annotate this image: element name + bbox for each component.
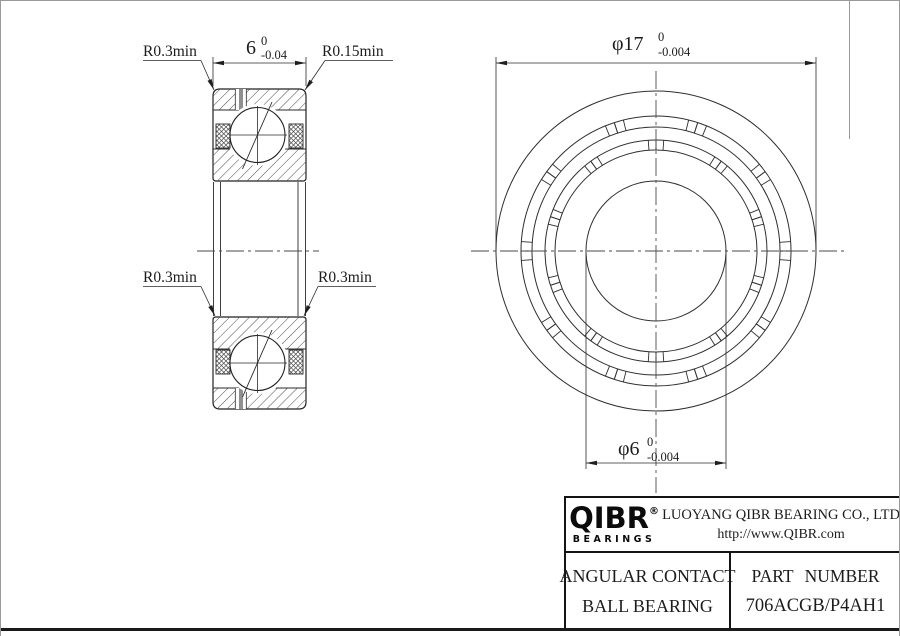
width-dim-value: 6 [246, 37, 256, 59]
fillet-label-mid-right: R0.3min [318, 269, 372, 286]
fillet-label-top-right: R0.15min [322, 43, 384, 60]
cage-section-left-lower [216, 350, 230, 374]
title-block-header-row: QIBR® BEARINGS LUOYANG QIBR BEARING CO.,… [566, 498, 900, 553]
drawing-sheet: 6 0 -0.04 R0.3min R0.15min R0.3min R0.3m… [0, 0, 900, 636]
product-name-line1: ANGULAR CONTACT [559, 566, 735, 587]
width-dim-tol-upper: 0 [261, 34, 267, 48]
company-website: http://www.QIBR.com [717, 527, 844, 543]
artifact-line [849, 1, 850, 139]
bore-dim-value: φ6 [618, 438, 640, 460]
part-number-value: 706ACGB/P4AH1 [746, 596, 886, 617]
cage-prong-upper [239, 89, 243, 110]
brand-logo: QIBR® BEARINGS [566, 504, 662, 545]
fillet-label-mid-left: R0.3min [143, 269, 197, 286]
section-upper [213, 89, 306, 181]
brand-logo-text: QIBR® [569, 504, 659, 533]
title-block: QIBR® BEARINGS LUOYANG QIBR BEARING CO.,… [564, 496, 900, 630]
title-block-detail-row: ANGULAR CONTACT BALL BEARING PART NUMBER… [566, 553, 900, 630]
company-cell: LUOYANG QIBR BEARING CO., LTD http://www… [662, 507, 900, 543]
width-dim-tol-lower: -0.04 [261, 48, 288, 62]
product-name-line2: BALL BEARING [582, 596, 713, 617]
cage-section-right-lower [289, 350, 303, 374]
cage-section-left-upper [216, 124, 230, 148]
od-dim-tol-upper: 0 [658, 30, 664, 44]
cage-prong-lower [239, 388, 243, 409]
product-name-cell: ANGULAR CONTACT BALL BEARING [566, 553, 731, 630]
front-view: φ17 0 -0.004 φ6 0 -0.004 [471, 30, 846, 493]
width-dimension: 6 0 -0.04 [213, 34, 306, 86]
sheet-border-bottom [1, 628, 900, 631]
registered-mark-icon: ® [649, 506, 659, 517]
bore-dim-tol-lower: -0.004 [647, 450, 680, 464]
bore-dim-tol-upper: 0 [647, 435, 653, 449]
bore-silhouette [197, 182, 319, 316]
od-dim-tol-lower: -0.004 [658, 45, 691, 59]
section-view: 6 0 -0.04 R0.3min R0.15min R0.3min R0.3m… [143, 34, 393, 409]
cage-section-right-upper [289, 124, 303, 148]
part-number-cell: PART NUMBER 706ACGB/P4AH1 [731, 553, 900, 630]
section-lower [213, 317, 306, 409]
company-name: LUOYANG QIBR BEARING CO., LTD [662, 507, 900, 524]
brand-logo-subtext: BEARINGS [573, 534, 656, 545]
part-number-label: PART NUMBER [751, 566, 879, 587]
od-dim-value: φ17 [612, 33, 644, 55]
fillet-label-top-left: R0.3min [143, 43, 197, 60]
